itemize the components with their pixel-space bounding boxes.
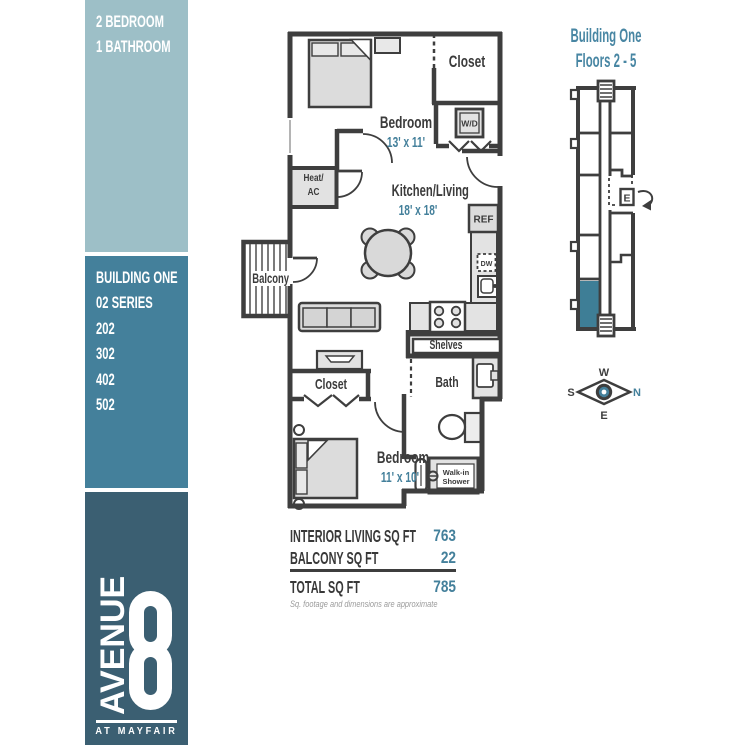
balcony-label: Balcony (252, 271, 283, 286)
compass-south-label: S (567, 387, 574, 399)
building-map: E (571, 81, 652, 336)
nightstand-icon (375, 38, 400, 53)
wall-sconce-icon (294, 425, 304, 435)
heat-ac-line2: AC (295, 186, 332, 200)
compass-west-label: W (599, 367, 610, 379)
heat-ac-line1: Heat/ (295, 172, 332, 186)
bed-icon (309, 40, 371, 108)
interior-sqft-label: INTERIOR LIVING SQ FT (290, 526, 416, 547)
building-map-subtitle: Floors 2 - 5 (569, 51, 642, 73)
ref-label: REF (474, 215, 494, 226)
disclaimer-text: Sq. footage and dimensions are approxima… (290, 599, 437, 610)
stove-icon (430, 302, 465, 332)
bedroom1-label: Bedroom (378, 113, 434, 133)
wd-label: W/D (461, 119, 478, 129)
bedroom2-dimensions: 11' x 10' (372, 470, 428, 486)
dw-label: DW (481, 261, 493, 268)
balcony-label-text: Balcony (252, 271, 290, 286)
walkin-shower-label-line2: Shower (442, 477, 469, 486)
bathroom-vanity-icon (473, 357, 500, 398)
compass-east-label: E (600, 410, 607, 422)
total-sqft-label: TOTAL SQ FT (290, 577, 360, 598)
entry-arrow-icon (638, 191, 652, 210)
elevator-label: E (623, 193, 630, 205)
walkin-shower-label-line1: Walk-in (443, 468, 470, 477)
highlighted-unit (580, 281, 600, 327)
kitchen-living-label: Kitchen/Living (392, 181, 445, 201)
bed-icon (294, 439, 357, 498)
floorplan-flyer: 2 BEDROOM 1 BATHROOM BUILDING ONE 02 SER… (0, 0, 750, 750)
bedroom1-dimensions: 13' x 11' (378, 135, 434, 151)
kitchen-living-dimensions: 18' x 18' (390, 203, 446, 219)
closet1-label: Closet (439, 52, 495, 72)
heat-ac-label: Heat/ AC (295, 172, 332, 199)
sofa-icon (299, 303, 380, 331)
bedroom2-label: Bedroom (375, 448, 431, 468)
total-sqft-value: 785 (408, 577, 456, 597)
bath-label: Bath (426, 374, 468, 391)
floorplan-drawing: E W E S N W/D REF DW Walk-in Shower (0, 0, 750, 750)
balcony-sqft-value: 22 (408, 548, 456, 568)
compass-north-label: N (633, 387, 641, 399)
dining-table-icon (362, 229, 415, 279)
balcony-sqft-label: BALCONY SQ FT (290, 548, 378, 569)
kitchen-sink-icon (478, 276, 497, 297)
summary-divider (290, 569, 456, 572)
building-map-title: Building One (569, 26, 642, 48)
interior-sqft-value: 763 (408, 526, 456, 546)
compass-rose: W E S N (567, 367, 641, 422)
tv-console-icon (317, 351, 362, 369)
toilet-icon (439, 413, 481, 442)
shelves-label: Shelves (418, 338, 474, 352)
closet2-label: Closet (310, 376, 352, 393)
